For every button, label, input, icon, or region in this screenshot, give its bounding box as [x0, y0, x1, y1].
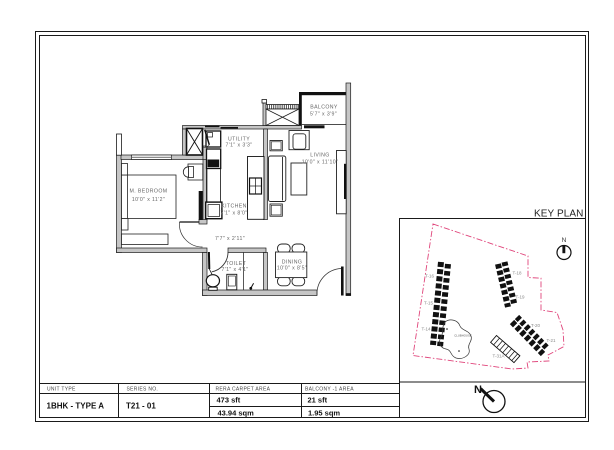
- svg-text:7'1" x 4'1": 7'1" x 4'1": [221, 267, 248, 273]
- svg-text:RERA CARPET AREA: RERA CARPET AREA: [216, 386, 271, 392]
- svg-text:21 sft: 21 sft: [308, 396, 328, 405]
- svg-text:473 sft: 473 sft: [217, 396, 241, 405]
- svg-text:KITCHEN: KITCHEN: [221, 204, 247, 210]
- svg-text:T-20: T-20: [531, 323, 541, 328]
- svg-text:SERIES NO.: SERIES NO.: [127, 386, 159, 392]
- svg-text:7'1" x 3'3": 7'1" x 3'3": [225, 143, 252, 149]
- svg-text:LIVING: LIVING: [310, 153, 329, 159]
- svg-text:T-16: T-16: [425, 274, 435, 279]
- svg-text:T-21: T-21: [547, 338, 557, 343]
- svg-text:T-15: T-15: [424, 301, 434, 306]
- svg-text:BALCONY -1 AREA: BALCONY -1 AREA: [305, 386, 354, 392]
- svg-text:UNIT TYPE: UNIT TYPE: [47, 386, 76, 392]
- svg-text:10'0" x 11'10": 10'0" x 11'10": [302, 160, 339, 166]
- svg-text:T21 - 01: T21 - 01: [126, 401, 156, 410]
- svg-text:10'0" x 11'2": 10'0" x 11'2": [132, 197, 165, 203]
- svg-text:N: N: [562, 237, 567, 244]
- svg-text:BALCONY: BALCONY: [310, 105, 338, 111]
- svg-text:CLUBHOUSE: CLUBHOUSE: [454, 334, 472, 338]
- svg-text:T-19: T-19: [516, 295, 526, 300]
- svg-text:5'7" x 3'9": 5'7" x 3'9": [310, 112, 337, 118]
- svg-text:KEY PLAN: KEY PLAN: [534, 209, 584, 220]
- svg-text:T-31A: T-31A: [493, 354, 505, 359]
- svg-text:7'7" x 2'11": 7'7" x 2'11": [215, 236, 245, 242]
- svg-text:1BHK - TYPE A: 1BHK - TYPE A: [47, 401, 105, 410]
- svg-text:43.94 sqm: 43.94 sqm: [218, 408, 255, 417]
- svg-text:10'0" x 8'5": 10'0" x 8'5": [277, 266, 307, 272]
- svg-text:1.95 sqm: 1.95 sqm: [308, 408, 340, 417]
- svg-text:T-18: T-18: [513, 271, 523, 276]
- svg-text:N: N: [474, 384, 482, 396]
- svg-text:T-14: T-14: [422, 327, 432, 332]
- svg-text:M. BEDROOM: M. BEDROOM: [129, 189, 167, 195]
- svg-text:7'1" x 8'0": 7'1" x 8'0": [220, 211, 247, 217]
